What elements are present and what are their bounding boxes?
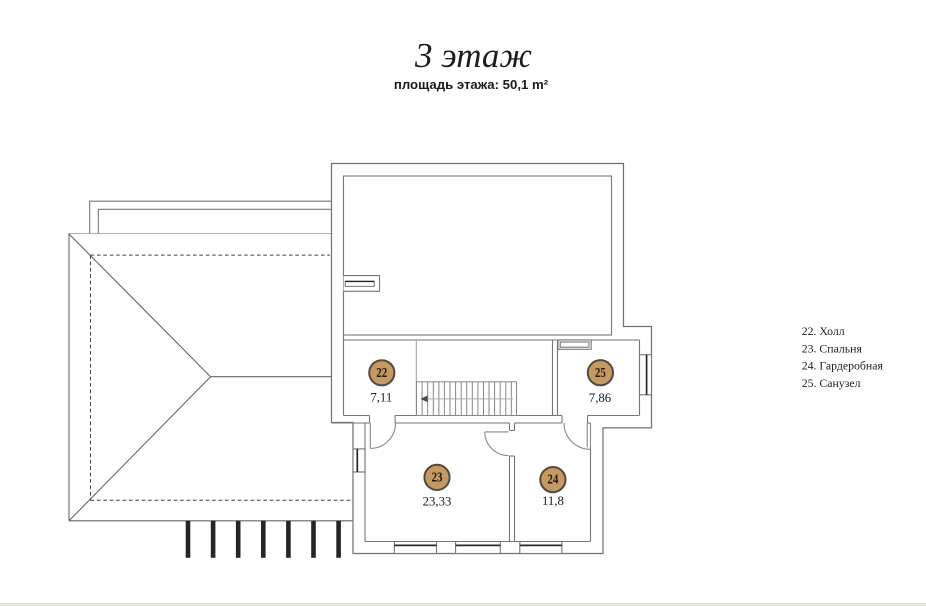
svg-text:23: 23 <box>432 470 443 485</box>
svg-text:22: 22 <box>376 365 387 380</box>
svg-text:25. Санузел: 25. Санузел <box>802 376 861 390</box>
svg-text:площадь этажа: 50,1 m²: площадь этажа: 50,1 m² <box>394 77 549 92</box>
svg-text:3 этаж: 3 этаж <box>414 36 532 75</box>
svg-text:7,86: 7,86 <box>589 391 612 405</box>
svg-text:23,33: 23,33 <box>423 495 452 509</box>
svg-text:23. Спальня: 23. Спальня <box>802 341 863 355</box>
svg-text:7,11: 7,11 <box>370 390 392 404</box>
svg-text:24. Гардеробная: 24. Гардеробная <box>802 358 884 372</box>
svg-text:22. Холл: 22. Холл <box>802 324 845 338</box>
svg-text:25: 25 <box>595 365 606 380</box>
svg-text:24: 24 <box>547 472 558 487</box>
svg-text:11,8: 11,8 <box>542 494 564 508</box>
